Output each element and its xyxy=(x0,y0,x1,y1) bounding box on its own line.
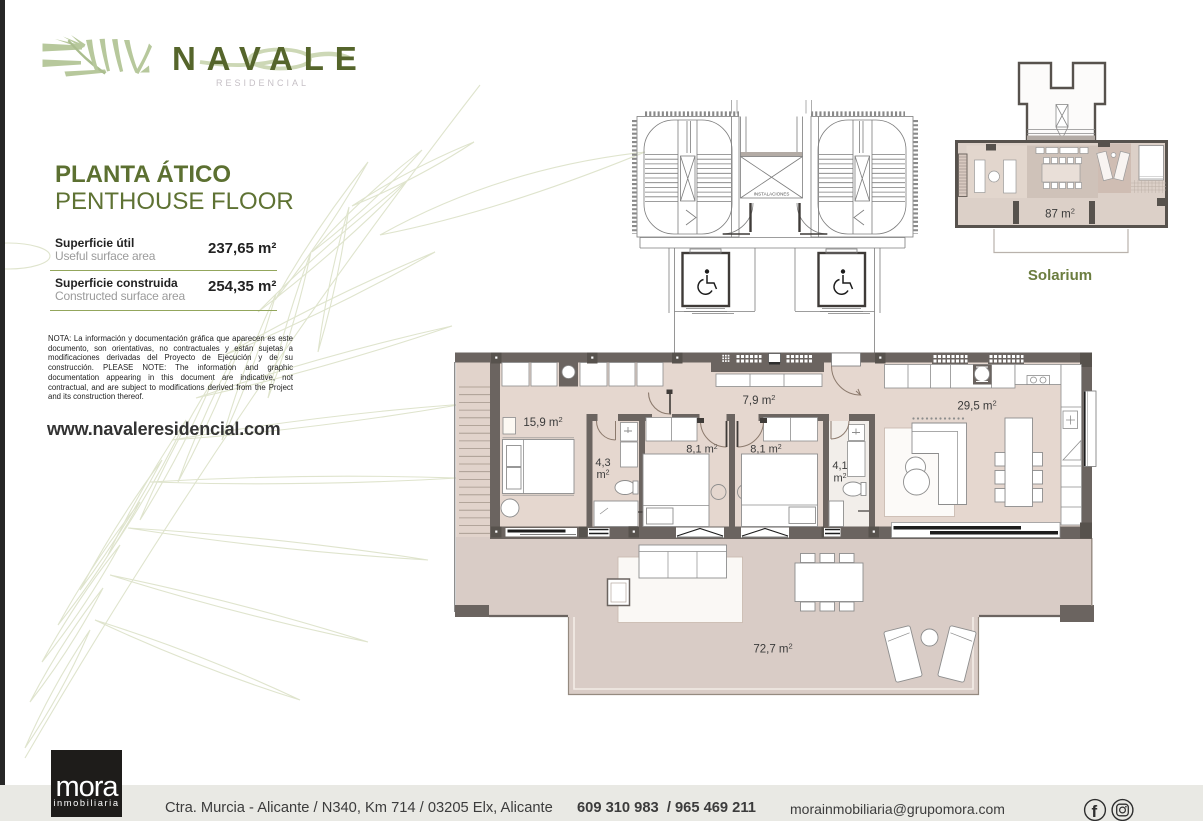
svg-text:INSTALACIONES: INSTALACIONES xyxy=(754,192,790,197)
svg-text:7,9 m2: 7,9 m2 xyxy=(743,393,776,407)
svg-text:f: f xyxy=(1092,802,1098,821)
svg-text:72,7 m2: 72,7 m2 xyxy=(753,642,792,656)
svg-text:15,9 m2: 15,9 m2 xyxy=(523,415,562,429)
svg-text:Solarium: Solarium xyxy=(1028,267,1092,284)
svg-text:29,5 m2: 29,5 m2 xyxy=(957,399,996,413)
svg-text:4,3: 4,3 xyxy=(595,457,610,469)
svg-text:87 m2: 87 m2 xyxy=(1045,207,1075,221)
svg-text:4,1: 4,1 xyxy=(832,460,847,472)
